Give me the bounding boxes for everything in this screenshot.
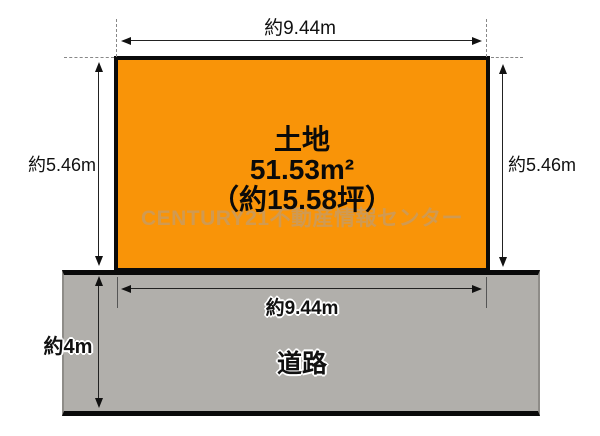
road-name-label: 道路 <box>230 344 374 380</box>
dim-arrowhead-left-icon <box>121 285 131 293</box>
dim-arrowhead-right-icon <box>472 37 482 45</box>
dim-arrowhead-up-icon <box>95 62 103 72</box>
dim-line-top-width <box>130 40 474 41</box>
road-area <box>62 270 540 416</box>
land-text-block: 土地 51.53m² （約15.58坪） <box>118 125 486 215</box>
land-right-depth-label: 約5.46m <box>508 151 588 177</box>
extension-line <box>116 19 117 57</box>
extension-line <box>486 19 487 57</box>
land-parcel: CENTURY21不動産情報センター 土地 51.53m² （約15.58坪） <box>114 56 490 272</box>
land-plot-diagram: 約9.44m 約5.46m 約5.46m CENTURY21不動産情報センター … <box>0 0 600 436</box>
dim-line-road-frontage <box>130 288 474 289</box>
road-width-label: 約4m <box>38 330 98 359</box>
dim-line-left-depth <box>98 71 99 257</box>
land-left-depth-label: 約5.46m <box>16 151 96 177</box>
extension-tick <box>486 277 487 308</box>
dim-arrowhead-down-icon <box>499 257 507 267</box>
dim-arrowhead-left-icon <box>121 37 131 45</box>
dim-arrowhead-right-icon <box>472 285 482 293</box>
dim-line-right-depth <box>502 73 503 257</box>
extension-line <box>64 57 114 58</box>
land-top-width-label: 約9.44m <box>230 13 370 40</box>
dim-arrowhead-down-icon <box>95 256 103 266</box>
dim-arrowhead-up-icon <box>95 276 103 286</box>
land-area-m2: 51.53m² <box>118 155 486 185</box>
land-title: 土地 <box>118 125 486 155</box>
extension-line <box>491 57 523 58</box>
land-area-tsubo: （約15.58坪） <box>118 185 486 215</box>
dim-arrowhead-up-icon <box>499 64 507 74</box>
dim-arrowhead-down-icon <box>95 398 103 408</box>
dim-line-road-width <box>98 285 99 399</box>
extension-tick <box>117 277 118 308</box>
road-frontage-label: 約9.44m <box>230 293 374 320</box>
